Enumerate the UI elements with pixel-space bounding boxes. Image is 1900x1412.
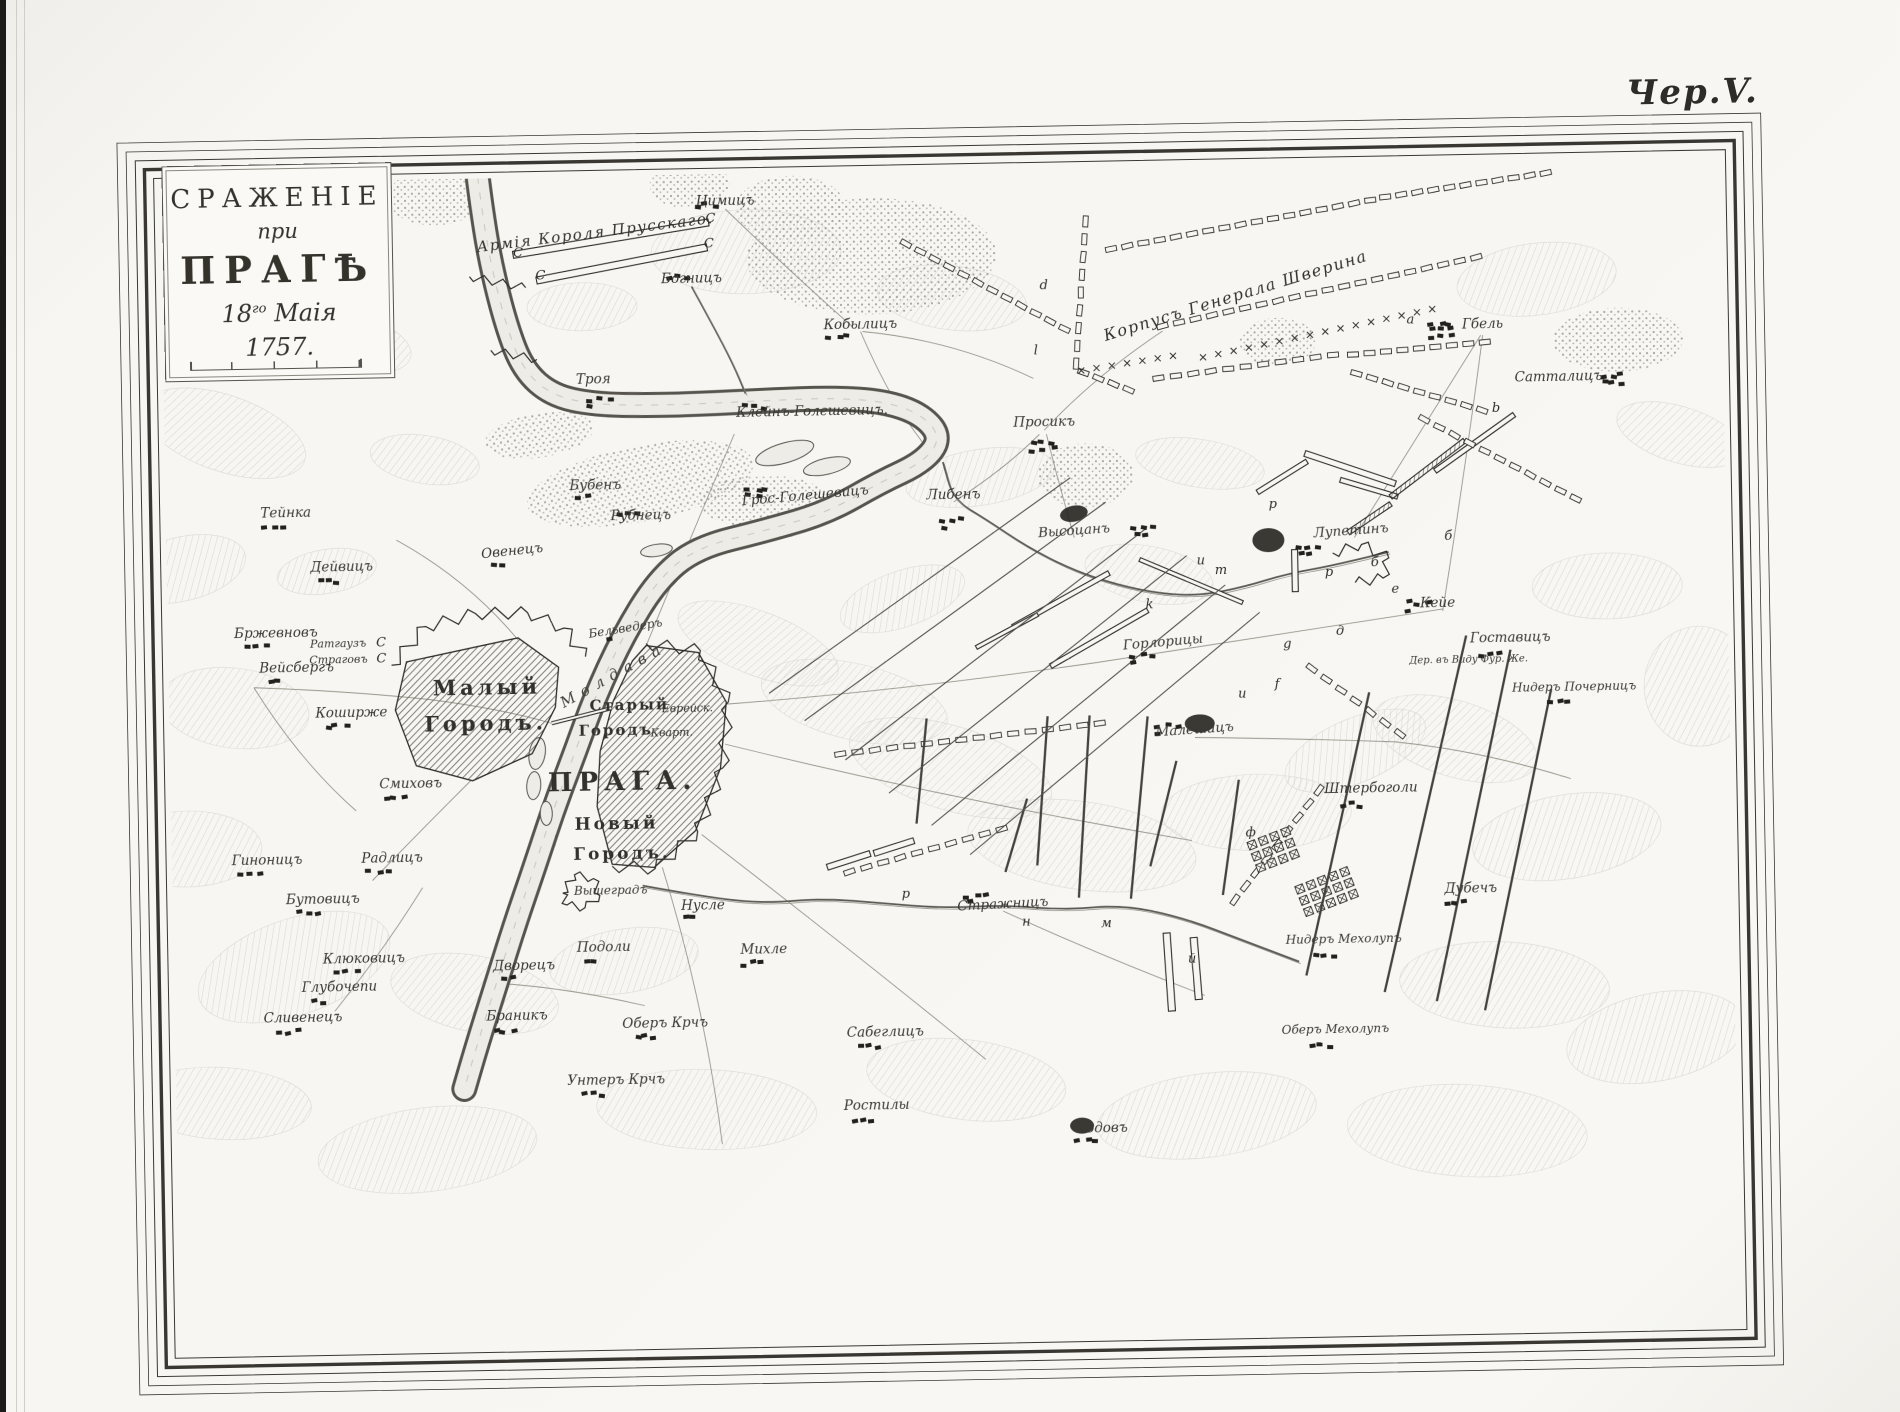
- place-label: Бубенъ: [568, 477, 621, 494]
- place-label: Глубочепи: [301, 979, 378, 996]
- place-label: Клейнъ-Голешевицъ.: [735, 402, 888, 421]
- date-suffix: го: [252, 301, 267, 316]
- place-label: Подоли: [576, 939, 631, 956]
- reference-letter: C: [513, 246, 523, 261]
- title-city-name: ПРАГѢ: [164, 245, 393, 293]
- place-label: Горлорицы: [1121, 631, 1203, 654]
- reference-letter: C: [376, 635, 386, 650]
- reference-letter: C: [535, 268, 545, 283]
- place-label: Сатталицъ: [1514, 368, 1602, 386]
- reference-letter: б: [1371, 555, 1379, 570]
- place-label: Страговъ: [309, 653, 368, 667]
- reference-letter: т: [1215, 563, 1228, 578]
- place-label: Дер. въ Виду Фур. Же.: [1408, 653, 1528, 666]
- reference-letter: p: [902, 887, 911, 902]
- title-preposition: при: [163, 217, 391, 245]
- place-label: Богницъ: [660, 270, 722, 287]
- army-label: Корпусъ Генерала Шверина: [1100, 246, 1369, 345]
- place-label: Радлицъ: [360, 850, 423, 867]
- reference-letter: C: [376, 651, 386, 666]
- place-label: Либенъ: [925, 486, 980, 503]
- place-label: Просикъ: [1012, 414, 1075, 431]
- reference-letter: и: [1196, 553, 1205, 568]
- place-label: Смиховъ: [379, 775, 442, 792]
- reference-letter: д: [1336, 624, 1345, 639]
- place-label: Браникъ: [485, 1007, 548, 1024]
- place-label: Ростилы: [843, 1097, 910, 1114]
- title-cartouche: СРАЖЕНІЕ при ПРАГѢ 18го Маія 1757.: [161, 162, 395, 382]
- reference-letter: и: [1238, 687, 1247, 702]
- place-label: Сливенецъ: [263, 1009, 342, 1026]
- place-label: Тейнка: [260, 505, 311, 522]
- reference-letter: f: [1273, 677, 1281, 692]
- city-district-label: Старый: [589, 695, 669, 714]
- place-label: Коширже: [314, 704, 387, 721]
- reference-letter: C: [705, 211, 715, 226]
- reference-letter: l: [1034, 343, 1038, 358]
- reference-letter: р: [1325, 565, 1334, 580]
- place-label: Дворецъ: [492, 957, 555, 974]
- place-label: Клюковицъ: [322, 950, 405, 968]
- place-label: Вышеградъ: [573, 883, 648, 898]
- reference-letter: м: [1101, 916, 1112, 931]
- place-label: Гбель: [1461, 316, 1503, 333]
- place-label: Нидеръ Мехолупъ: [1285, 931, 1402, 947]
- place-label: Бутовицъ: [285, 891, 360, 908]
- place-label: Дейвицъ: [309, 559, 373, 576]
- place-label: Ратгаузъ: [309, 637, 366, 651]
- place-label: Гоставицъ: [1469, 629, 1551, 646]
- reference-letter: C: [704, 236, 714, 251]
- place-label: Рубнецъ: [609, 507, 671, 524]
- reference-letter: k: [1145, 597, 1153, 612]
- place-label: Штербоголи: [1323, 779, 1418, 797]
- place-label: Лупетинъ: [1312, 520, 1389, 541]
- reference-letter: d: [1039, 278, 1048, 293]
- title-battle-word: СРАЖЕНІЕ: [163, 181, 392, 215]
- place-label: Сабеглицъ: [847, 1024, 924, 1041]
- date-day: 18: [221, 300, 252, 329]
- reference-letter: p: [1268, 497, 1277, 512]
- scanned-map-page: ЦимицъБогницъКобылицъТрояКлейнъ-Голешеви…: [0, 0, 1900, 1412]
- place-label: Кейе: [1419, 595, 1455, 612]
- place-label: Кобылицъ: [822, 316, 897, 333]
- city-district-label: Новый: [574, 813, 658, 835]
- city-district-label: Еврейск.: [661, 701, 714, 715]
- city-district-label: ПРАГА.: [548, 766, 698, 799]
- city-district-label: Городъ.: [424, 709, 547, 736]
- reference-letter: g: [1283, 637, 1292, 652]
- place-label: Высоцанъ: [1037, 520, 1111, 541]
- place-label: Гиноницъ: [231, 852, 303, 869]
- place-label: Оберъ Крчъ: [622, 1014, 708, 1032]
- title-date: 18го Маія: [165, 297, 393, 329]
- place-label: Цимицъ: [696, 192, 755, 209]
- reference-letter: й: [1188, 952, 1197, 967]
- map-sheet: ЦимицъБогницъКобылицъТрояКлейнъ-Голешеви…: [0, 0, 1900, 1412]
- place-label: Оберъ Мехолупъ: [1282, 1021, 1390, 1037]
- city-district-label: Городъ.: [573, 843, 671, 865]
- city-district-label: Малый: [433, 673, 542, 700]
- place-label: Унтеръ Крчъ: [567, 1071, 665, 1089]
- place-label: Нидеръ Почерницъ: [1511, 678, 1637, 694]
- place-label: Дубечъ: [1443, 880, 1497, 897]
- place-label: Малешицъ: [1154, 719, 1234, 741]
- reference-letter: b: [1492, 401, 1501, 416]
- reference-letter: ф: [1246, 825, 1256, 840]
- city-district-label: Кварт.: [649, 726, 693, 740]
- place-label: Бржевновъ: [233, 625, 318, 643]
- reference-letter: н: [1022, 915, 1031, 930]
- place-label: Нусле: [680, 897, 725, 914]
- map-scale-bar: [190, 360, 362, 371]
- place-label: Стражницъ: [957, 894, 1049, 915]
- reference-letter: a: [1406, 312, 1414, 327]
- place-label: Ходовъ: [1075, 1120, 1128, 1137]
- date-month: Маія: [274, 298, 337, 327]
- sheet-number-label: Чер.V.: [1626, 71, 1759, 113]
- reference-letter: e: [1391, 582, 1399, 597]
- place-label: Михле: [739, 941, 787, 958]
- reference-letter: б: [1444, 529, 1452, 544]
- place-label: Овенецъ: [480, 540, 544, 562]
- city-district-label: Городъ: [578, 720, 653, 739]
- place-label: Троя: [576, 371, 611, 388]
